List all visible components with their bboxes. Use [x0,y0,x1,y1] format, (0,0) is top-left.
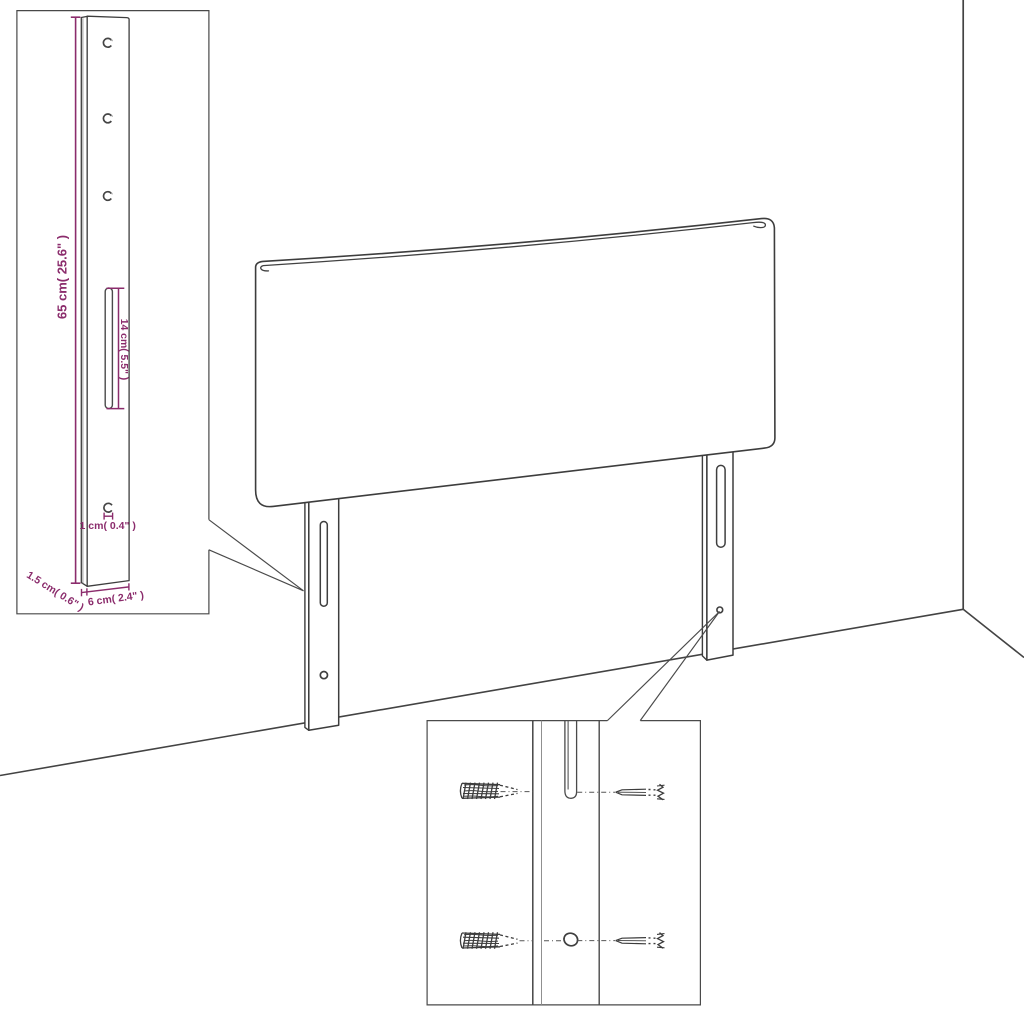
svg-text:65 cm( 25.6" ): 65 cm( 25.6" ) [55,235,70,319]
svg-text:1 cm( 0.4" ): 1 cm( 0.4" ) [80,520,136,532]
svg-text:14 cm( 5.5" ): 14 cm( 5.5" ) [118,319,129,381]
